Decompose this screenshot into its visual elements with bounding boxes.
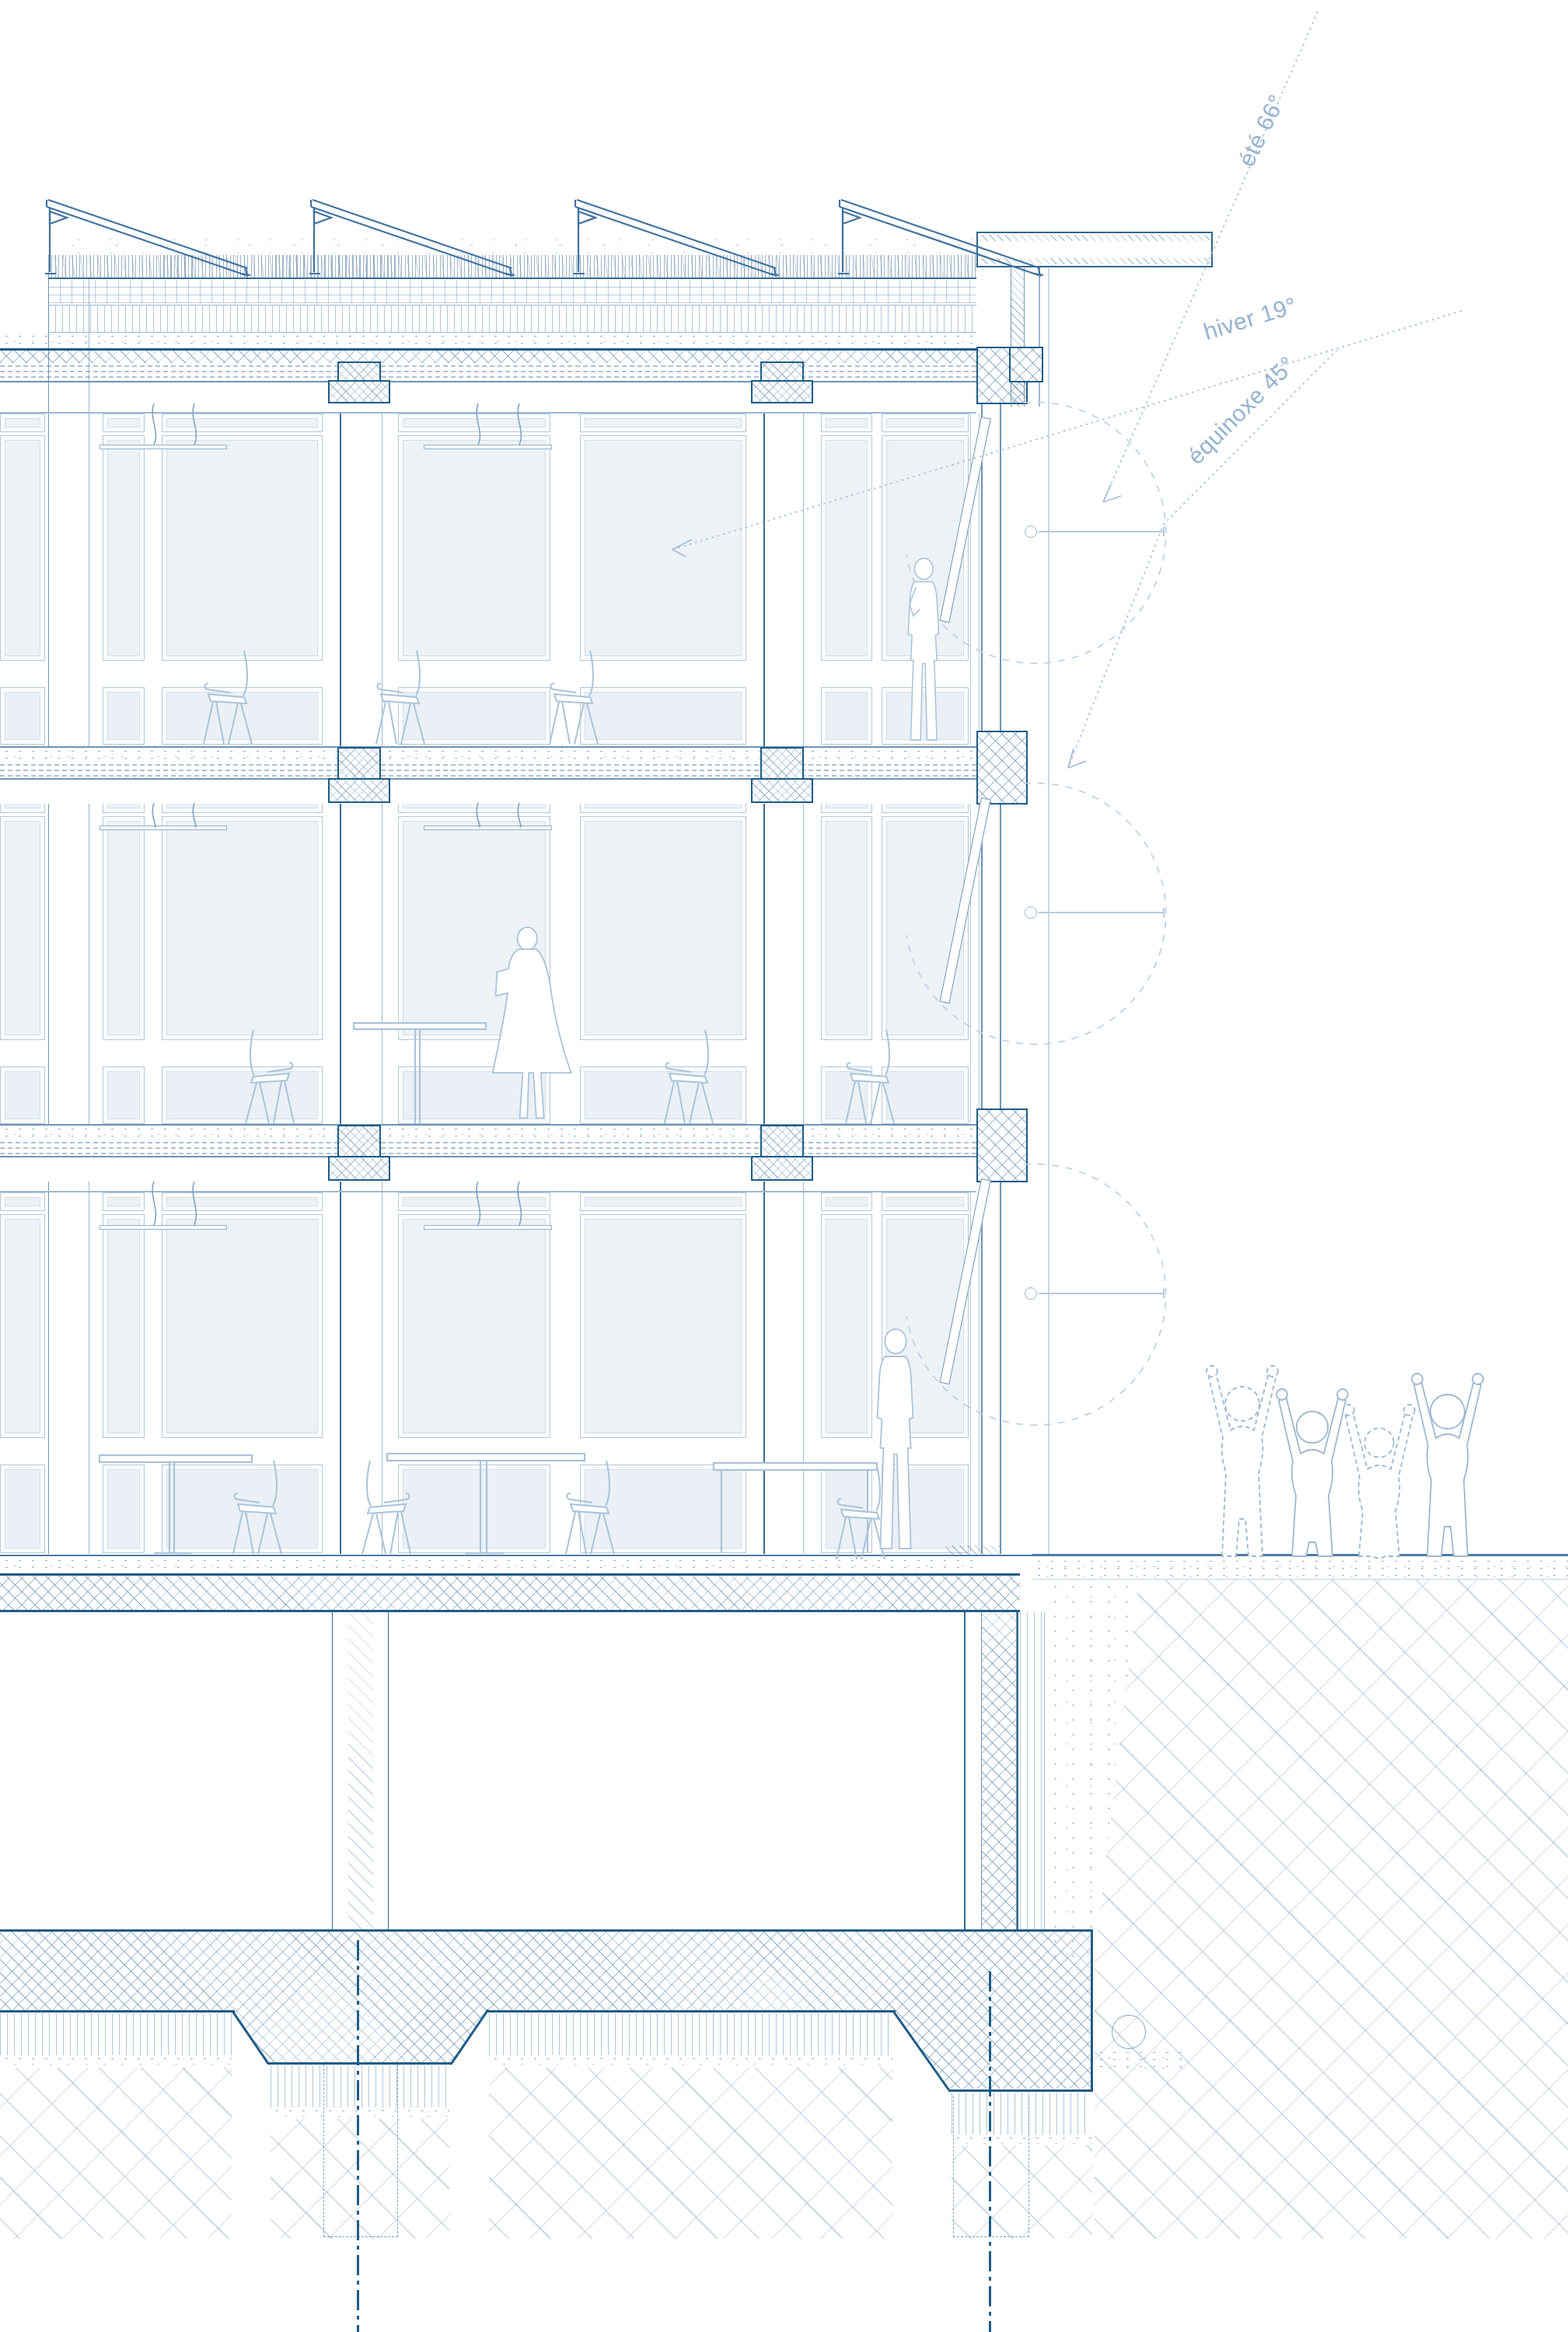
earth-under-0 xyxy=(0,2068,232,2239)
window-pane-f0-1 xyxy=(103,435,145,661)
slab-beam-neck-1-0 xyxy=(337,1125,381,1157)
window-pane-f0-0 xyxy=(0,687,45,745)
window-pane-f2-5 xyxy=(821,1464,872,1553)
section-drawing: été 66°hiver 19°équinoxe 45° xyxy=(0,0,1568,2332)
window-pane-f0-1 xyxy=(103,687,145,745)
slab-beam-head-0-0 xyxy=(328,778,390,803)
slab-beam-head-1-0 xyxy=(328,1156,390,1181)
roof-beam-neck-1 xyxy=(760,361,804,382)
window-pane-f2-3 xyxy=(398,1192,550,1211)
window-pane-f0-0 xyxy=(0,435,45,661)
roof-ceiling-line xyxy=(0,381,976,382)
parapet-block xyxy=(1009,347,1043,382)
sun-angle-label-summer: été 66° xyxy=(1233,90,1290,171)
basement-wall-inner xyxy=(964,1612,966,1931)
window-pane-f1-1 xyxy=(103,1067,145,1124)
window-pane-f0-2 xyxy=(162,435,323,661)
louver-hinge-2 xyxy=(1025,1287,1037,1300)
window-pane-f2-6 xyxy=(882,1192,969,1211)
slab-stipple-1 xyxy=(0,1126,976,1138)
window-pane-f2-2 xyxy=(162,1192,323,1211)
window-pane-f1-4 xyxy=(580,816,746,1040)
window-pane-f0-4 xyxy=(580,414,746,432)
slab-ceiling-0 xyxy=(0,778,976,780)
louver-hinge-0 xyxy=(1025,525,1037,538)
wall-cut-left-strip xyxy=(48,278,89,1555)
roof-wood-layer-1 xyxy=(0,371,976,372)
window-pane-f0-1 xyxy=(103,414,145,432)
basement-wall-insulation xyxy=(981,1612,1017,1931)
earth-right xyxy=(1095,1580,1568,2239)
slab-wood-1-0 xyxy=(0,1142,976,1143)
window-pane-f2-2 xyxy=(162,1214,323,1438)
window-pane-f2-6 xyxy=(882,1464,969,1553)
roof-gravel xyxy=(48,305,976,333)
subbase-2 xyxy=(489,2013,892,2055)
window-pane-f2-0 xyxy=(0,1192,45,1211)
roof-wood-layer-0 xyxy=(0,365,976,367)
window-pane-f2-1 xyxy=(103,1464,145,1553)
louver-arm-2 xyxy=(1039,1293,1164,1294)
window-pane-f1-3 xyxy=(398,1067,550,1124)
window-pane-f2-2 xyxy=(162,1464,323,1553)
window-pane-f2-5 xyxy=(821,1214,872,1438)
pile-centerline-0 xyxy=(357,1940,359,2332)
grade-hairline xyxy=(1032,1579,1568,1580)
slab-facade-block-0 xyxy=(976,731,1028,805)
raft-top-line xyxy=(0,1929,1092,1932)
pendant-fixture-f1-1 xyxy=(424,826,552,830)
pendant-fixture-f2-0 xyxy=(100,1225,227,1230)
slab-stipple-0 xyxy=(0,748,976,760)
window-pane-f1-0 xyxy=(0,816,45,1040)
window-pane-f0-3 xyxy=(398,687,550,745)
pendant-fixture-f2-1 xyxy=(424,1225,552,1230)
louver-arm-tick-1 xyxy=(1163,908,1165,917)
raft-b3 xyxy=(486,2010,896,2013)
window-pane-f0-5 xyxy=(821,435,872,661)
window-pane-f2-4 xyxy=(580,1214,746,1438)
ground-floor-line xyxy=(0,1555,1035,1556)
window-pane-f0-4 xyxy=(580,435,746,661)
slab-wood-0-0 xyxy=(0,764,976,766)
window-pane-f1-3 xyxy=(398,816,550,1040)
window-pane-f0-2 xyxy=(162,414,323,432)
slab-facade-block-1 xyxy=(976,1108,1028,1182)
roof-substrate xyxy=(48,280,976,303)
slab-ceiling-1 xyxy=(0,1156,976,1157)
canopy-support xyxy=(1011,268,1025,407)
raft-b4 xyxy=(948,2089,1093,2092)
subbase-stip-0 xyxy=(0,2055,232,2065)
roof-grass xyxy=(48,255,976,278)
window-pane-f0-5 xyxy=(821,687,872,745)
figure-children-group xyxy=(1207,1366,1483,1558)
sun-angle-label-winter: hiver 19° xyxy=(1200,292,1300,346)
roof-beam-head-0 xyxy=(328,380,390,403)
window-pane-f2-5 xyxy=(821,1192,872,1211)
facade-inner-line xyxy=(981,404,983,1556)
door-threshold xyxy=(945,1545,1003,1555)
pendant-fixture-f1-0 xyxy=(100,826,227,830)
subbase-stip-2 xyxy=(489,2055,892,2065)
basement-column-core xyxy=(348,1612,373,1929)
window-pane-f0-6 xyxy=(882,687,969,745)
window-pane-f1-1 xyxy=(103,816,145,1040)
slab-wood-1-1 xyxy=(0,1147,976,1149)
slab-wood-0-1 xyxy=(0,770,976,771)
slab-beam-neck-1-1 xyxy=(760,1125,804,1157)
pile-1 xyxy=(953,2096,1029,2237)
louver-hinge-1 xyxy=(1025,906,1037,919)
groundslab-concrete xyxy=(0,1573,1020,1612)
window-pane-f2-0 xyxy=(0,1214,45,1438)
window-pane-f2-1 xyxy=(103,1214,145,1438)
roof-flowers xyxy=(48,232,976,257)
window-pane-f0-2 xyxy=(162,687,323,745)
drain-pipe xyxy=(1112,2015,1146,2049)
window-pane-f1-5 xyxy=(821,1067,872,1124)
window-pane-f1-5 xyxy=(821,816,872,1040)
window-pane-f1-0 xyxy=(0,1067,45,1124)
window-pane-f0-3 xyxy=(398,435,550,661)
slab-wood-0-2 xyxy=(0,775,976,777)
pendant-fixture-f0-0 xyxy=(100,445,227,449)
grade-line xyxy=(1032,1554,1568,1556)
pile-0 xyxy=(323,2065,398,2237)
window-pane-f0-0 xyxy=(0,414,45,432)
drain-bed xyxy=(1095,2049,1185,2069)
louver-arm-1 xyxy=(1039,912,1164,913)
window-pane-f1-2 xyxy=(162,1067,323,1124)
window-pane-f0-4 xyxy=(580,687,746,745)
window-pane-f2-1 xyxy=(103,1192,145,1211)
louver-arm-tick-2 xyxy=(1163,1289,1165,1298)
slab-beam-neck-0-1 xyxy=(760,747,804,780)
slab-beam-head-1-1 xyxy=(751,1156,813,1181)
window-pane-f2-0 xyxy=(0,1464,45,1553)
window-pane-f2-4 xyxy=(580,1464,746,1553)
roof-beam-head-1 xyxy=(751,380,813,403)
basement-wall-outer xyxy=(1017,1612,1018,1931)
sun-angle-label-equinox: équinoxe 45° xyxy=(1182,351,1301,470)
roof-beam-neck-0 xyxy=(337,361,381,382)
canopy-top-skin xyxy=(980,235,1210,241)
louver-arm-0 xyxy=(1039,531,1164,532)
canopy-bottom-skin xyxy=(980,258,1210,264)
window-pane-f0-6 xyxy=(882,414,969,432)
pendant-fixture-f0-1 xyxy=(424,445,552,449)
roof-wood-layer-2 xyxy=(0,376,976,378)
raft-b1 xyxy=(0,2010,235,2013)
subbase-0 xyxy=(0,2013,232,2055)
window-pane-f2-3 xyxy=(398,1214,550,1438)
window-pane-f0-5 xyxy=(821,414,872,432)
earth-under-2 xyxy=(489,2068,892,2239)
grade-stipple xyxy=(1032,1558,1568,1578)
roof-screed-stipple xyxy=(0,333,976,348)
window-pane-f0-3 xyxy=(398,414,550,432)
pile-centerline-1 xyxy=(989,1971,991,2332)
roof-top-line xyxy=(48,278,976,279)
slab-wood-1-2 xyxy=(0,1153,976,1154)
slab-beam-head-0-1 xyxy=(751,778,813,803)
basement-drain-mat xyxy=(1020,1612,1045,1931)
window-pane-f1-6 xyxy=(882,1067,969,1124)
facade-outer-line xyxy=(1000,404,1001,1556)
window-pane-f2-3 xyxy=(398,1464,550,1553)
window-pane-f1-2 xyxy=(162,816,323,1040)
window-pane-f1-4 xyxy=(580,1067,746,1124)
column-strip-0 xyxy=(340,412,382,1555)
louver-arm-tick-0 xyxy=(1163,527,1165,536)
groundslab-stipple xyxy=(0,1557,976,1571)
canopy-support-line xyxy=(1039,268,1040,407)
window-pane-f2-4 xyxy=(580,1192,746,1211)
column-strip-1 xyxy=(763,412,804,1555)
slab-beam-neck-0-0 xyxy=(337,747,381,780)
roof-insulation xyxy=(0,351,976,363)
